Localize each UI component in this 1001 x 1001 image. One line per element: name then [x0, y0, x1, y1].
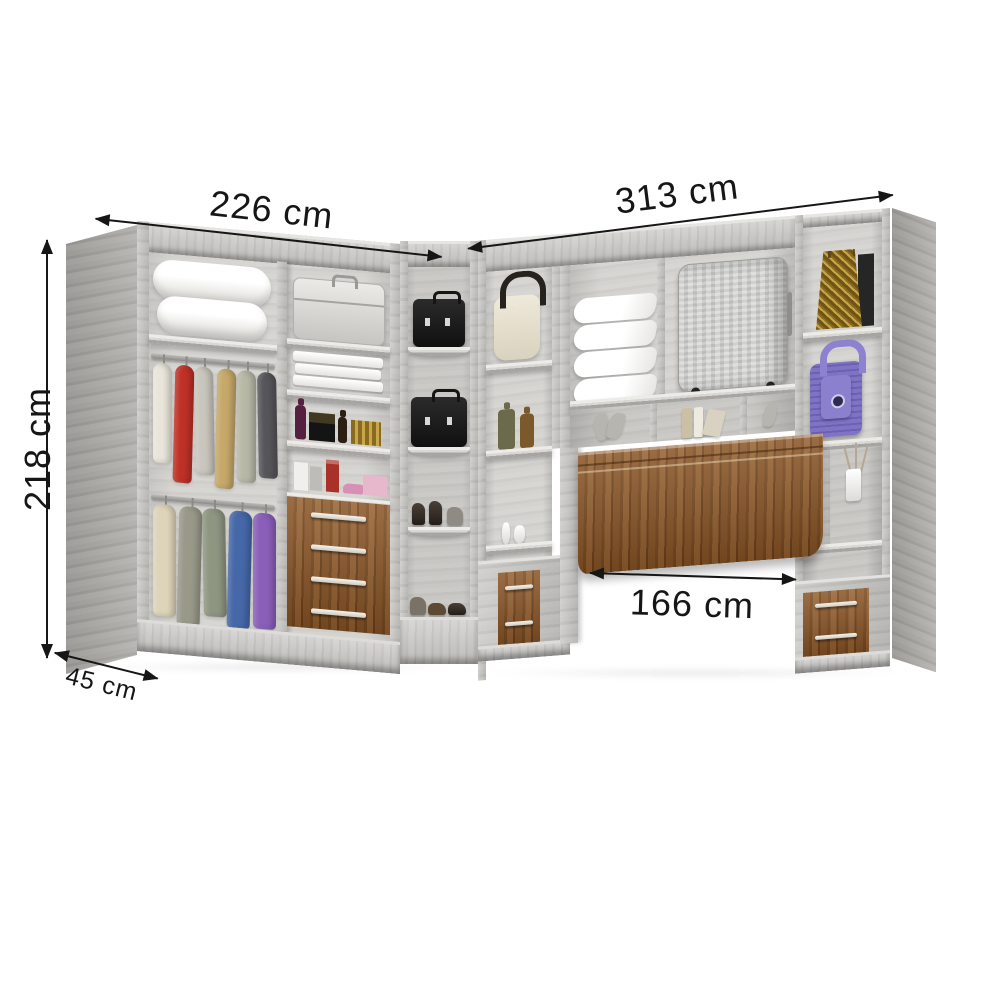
red-box	[326, 460, 339, 493]
nightstand-left	[478, 554, 570, 661]
clothes-rail-bottom	[153, 503, 276, 634]
leaf-decor	[594, 412, 628, 445]
white-box	[293, 461, 309, 492]
briefcase	[413, 299, 465, 347]
ornament	[762, 402, 782, 434]
garment	[237, 370, 256, 484]
corner-right-wall	[470, 241, 478, 664]
drawer-handle	[505, 620, 533, 626]
brown-bottle	[520, 413, 534, 448]
garment	[227, 510, 253, 630]
nightstand-drawers	[803, 588, 869, 657]
green-bottle	[498, 409, 515, 450]
small-vase	[514, 525, 525, 544]
drawer-handle	[815, 633, 857, 640]
nightstand-right	[795, 574, 890, 673]
dimension-height: 218 cm	[10, 240, 86, 658]
gold-box	[351, 420, 381, 447]
right-wardrobe-section	[478, 208, 892, 701]
silver-box	[310, 466, 322, 491]
corner-base	[400, 617, 478, 664]
perfume-bottle	[338, 417, 347, 444]
suitcase	[293, 277, 385, 347]
bed-width-label: 166 cm	[588, 580, 795, 628]
purple-handbag	[810, 360, 862, 438]
cubby-divider	[740, 396, 747, 435]
pillow-stack	[574, 291, 656, 403]
perfume-bottle	[295, 405, 306, 440]
bed-support-column	[560, 447, 578, 644]
pink-heels	[343, 483, 363, 495]
four-drawer-chest	[287, 496, 390, 635]
duvet	[153, 258, 273, 344]
corner-left-wall	[400, 241, 408, 664]
garment	[202, 508, 227, 618]
garment	[153, 503, 176, 617]
cubby-divider	[650, 403, 657, 442]
garment	[253, 512, 276, 630]
dimension-bed-width: 166 cm	[588, 572, 795, 628]
garment	[257, 372, 278, 479]
bed-support-column	[560, 265, 570, 448]
drawer-handle	[815, 601, 857, 608]
cubby-divider	[822, 450, 830, 545]
garment	[215, 368, 237, 490]
garment	[177, 505, 203, 627]
pink-box	[363, 475, 387, 497]
nightstand-base	[478, 639, 570, 661]
garment	[153, 362, 172, 464]
suitcase-handle	[787, 292, 792, 336]
cubby-divider	[657, 258, 665, 397]
clothes-rail-top	[153, 362, 277, 493]
drawer-handle	[311, 544, 366, 554]
fold-down-bed-panel	[578, 433, 823, 574]
hard-shell-suitcase	[678, 256, 788, 393]
drawer-handle	[311, 512, 366, 522]
garment	[194, 366, 215, 475]
garment	[173, 364, 195, 484]
cream-handbag	[494, 294, 540, 362]
right-side-panel	[892, 208, 936, 672]
drawer-handle	[311, 608, 366, 618]
left-center-divider	[277, 261, 287, 634]
product-image: 226 cm 313 cm 218 cm 45 cm 166 cm	[0, 0, 1001, 1001]
left-wardrobe-section	[137, 221, 400, 674]
corner-unit	[400, 241, 478, 664]
small-vase	[502, 522, 510, 545]
perfume-box	[309, 412, 335, 442]
briefcase	[411, 397, 467, 447]
vase-pot	[846, 468, 861, 501]
left-right-edge	[390, 243, 400, 674]
drawer-handle	[505, 584, 533, 590]
left-inner-wall	[137, 221, 149, 652]
height-label: 218 cm	[6, 240, 70, 658]
gold-bag	[816, 248, 862, 330]
nightstand-drawers	[498, 570, 540, 645]
drawer-handle	[311, 576, 366, 586]
